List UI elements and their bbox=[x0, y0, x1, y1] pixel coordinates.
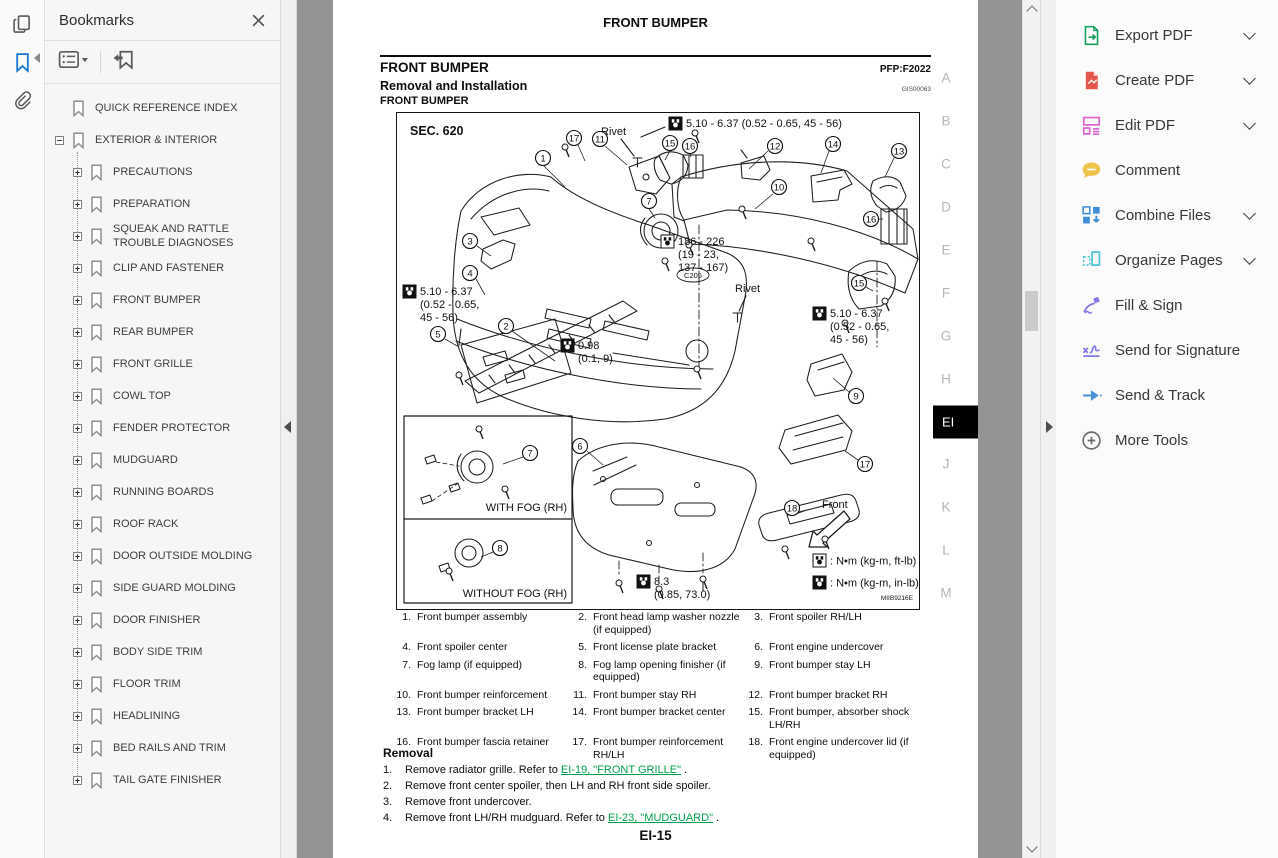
svg-text:12: 12 bbox=[770, 141, 781, 152]
scroll-down-icon[interactable] bbox=[1026, 841, 1037, 852]
tool-send-signature[interactable]: Send for Signature bbox=[1056, 328, 1278, 373]
tool-label: Comment bbox=[1115, 162, 1180, 179]
bookmark-label: MUDGUARD bbox=[113, 453, 178, 467]
svg-text:(19 - 23,: (19 - 23, bbox=[678, 249, 719, 261]
bookmark-options-icon[interactable] bbox=[57, 48, 90, 76]
removal-step: 1.Remove radiator grille. Refer to EI-19… bbox=[383, 762, 719, 778]
svg-text:16: 16 bbox=[866, 214, 877, 225]
new-bookmark-icon[interactable] bbox=[111, 48, 138, 76]
tool-label: Fill & Sign bbox=[1115, 297, 1183, 314]
svg-text:3: 3 bbox=[467, 236, 472, 247]
bookmark-item[interactable]: CLIP AND FASTENER bbox=[45, 252, 280, 284]
tool-send-track[interactable]: Send & Track bbox=[1056, 373, 1278, 418]
tool-export-pdf[interactable]: Export PDF bbox=[1056, 13, 1278, 58]
svg-text:WITHOUT FOG (RH): WITHOUT FOG (RH) bbox=[463, 588, 567, 600]
bookmark-item[interactable]: BED RAILS AND TRIM bbox=[45, 732, 280, 764]
part-item: 8.Fog lamp opening finisher (if equipped… bbox=[572, 659, 748, 684]
bookmark-item[interactable]: PREPARATION bbox=[45, 188, 280, 220]
svg-text:8: 8 bbox=[497, 543, 502, 554]
page-banner-title: FRONT BUMPER bbox=[333, 15, 978, 30]
removal-step: 2.Remove front center spoiler, then LH a… bbox=[383, 778, 719, 794]
part-item: 5.Front license plate bracket bbox=[572, 641, 748, 654]
bookmark-label: ROOF RACK bbox=[113, 517, 178, 531]
bookmark-label: COWL TOP bbox=[113, 389, 171, 403]
section-tab: A bbox=[931, 71, 961, 86]
chevron-down-icon[interactable] bbox=[1243, 252, 1256, 265]
svg-text:C205: C205 bbox=[684, 271, 702, 280]
expand-right-icon bbox=[1046, 421, 1053, 433]
bookmark-label: RUNNING BOARDS bbox=[113, 485, 214, 499]
svg-text:15: 15 bbox=[854, 278, 865, 289]
tool-organize-pages[interactable]: Organize Pages bbox=[1056, 238, 1278, 283]
page-thumbnails-button[interactable] bbox=[0, 8, 44, 46]
bookmark-item[interactable]: FRONT BUMPER bbox=[45, 284, 280, 316]
bookmarks-panel: Bookmarks QUICK REFERENCE INDEXEXTERIOR … bbox=[45, 0, 281, 858]
bookmark-label: FENDER PROTECTOR bbox=[113, 421, 230, 435]
svg-text:18: 18 bbox=[787, 503, 798, 514]
part-item: 15.Front bumper, absorber shock LH/RH bbox=[748, 706, 920, 731]
bookmark-item[interactable]: FRONT GRILLE bbox=[45, 348, 280, 380]
part-item: 13.Front bumper bracket LH bbox=[396, 706, 572, 731]
bookmark-label: TAIL GATE FINISHER bbox=[113, 773, 222, 787]
bookmark-item[interactable]: TAIL GATE FINISHER bbox=[45, 764, 280, 796]
cross-reference-link[interactable]: EI-23, "MUDGUARD" bbox=[608, 812, 713, 824]
bookmark-label: BED RAILS AND TRIM bbox=[113, 741, 226, 755]
part-item: 10.Front bumper reinforcement bbox=[396, 689, 572, 702]
export-pdf-icon bbox=[1079, 24, 1103, 48]
part-item: 17.Front bumper reinforcement RH/LH bbox=[572, 736, 748, 761]
part-item: 4.Front spoiler center bbox=[396, 641, 572, 654]
svg-text:Front: Front bbox=[822, 499, 848, 511]
tool-more-tools[interactable]: More Tools bbox=[1056, 418, 1278, 463]
chevron-down-icon[interactable] bbox=[1243, 117, 1256, 130]
svg-text:5.10 - 6.37: 5.10 - 6.37 bbox=[420, 286, 473, 298]
part-item: 7.Fog lamp (if equipped) bbox=[396, 659, 572, 684]
svg-text:15: 15 bbox=[665, 138, 676, 149]
svg-text:5: 5 bbox=[435, 329, 440, 340]
left-rail bbox=[0, 0, 45, 858]
svg-text:10: 10 bbox=[774, 182, 785, 193]
tool-label: Create PDF bbox=[1115, 72, 1194, 89]
send-signature-icon bbox=[1079, 339, 1103, 363]
bookmark-item[interactable]: ROOF RACK bbox=[45, 508, 280, 540]
bookmark-item[interactable]: FENDER PROTECTOR bbox=[45, 412, 280, 444]
svg-text:: N•m (kg-m, ft-lb): : N•m (kg-m, ft-lb) bbox=[830, 556, 916, 568]
tool-label: Send & Track bbox=[1115, 387, 1205, 404]
bookmark-item[interactable]: REAR BUMPER bbox=[45, 316, 280, 348]
part-item: 18.Front engine undercover lid (if equip… bbox=[748, 736, 920, 761]
part-item: 11.Front bumper stay RH bbox=[572, 689, 748, 702]
section-tab-active: EI bbox=[933, 406, 978, 439]
collapse-notch-icon bbox=[34, 53, 40, 63]
svg-text:: N•m (kg-m, in-lb): : N•m (kg-m, in-lb) bbox=[830, 578, 919, 590]
bookmarks-header: Bookmarks bbox=[45, 0, 280, 41]
bookmark-label: DOOR FINISHER bbox=[113, 613, 200, 627]
sec-label: SEC. 620 bbox=[410, 124, 464, 138]
tool-fill-sign[interactable]: Fill & Sign bbox=[1056, 283, 1278, 328]
bookmark-item[interactable]: SQUEAK AND RATTLE TROUBLE DIAGNOSES bbox=[45, 220, 280, 252]
bookmark-item[interactable]: COWL TOP bbox=[45, 380, 280, 412]
svg-text:Rivet: Rivet bbox=[735, 283, 760, 295]
create-pdf-icon bbox=[1079, 69, 1103, 93]
section-tab: E bbox=[931, 243, 961, 258]
section-tab: M bbox=[931, 586, 961, 601]
bookmark-item[interactable]: SIDE GUARD MOLDING bbox=[45, 572, 280, 604]
cross-reference-link[interactable]: EI-19, "FRONT GRILLE" bbox=[561, 764, 681, 776]
section-tab: B bbox=[931, 114, 961, 129]
tool-label: Send for Signature bbox=[1115, 342, 1240, 359]
tool-label: Combine Files bbox=[1115, 207, 1211, 224]
bookmark-label: PRECAUTIONS bbox=[113, 165, 192, 179]
bookmark-item[interactable]: MUDGUARD bbox=[45, 444, 280, 476]
bookmark-item[interactable]: PRECAUTIONS bbox=[45, 156, 280, 188]
scroll-up-icon[interactable] bbox=[1026, 5, 1037, 16]
collapse-left-panel-handle[interactable] bbox=[281, 0, 297, 858]
scrollbar-thumb[interactable] bbox=[1025, 291, 1038, 331]
subsection-heading: Removal and Installation bbox=[380, 79, 527, 93]
bookmarks-panel-button[interactable] bbox=[0, 46, 44, 84]
diagram-art bbox=[404, 127, 918, 603]
bookmark-label: CLIP AND FASTENER bbox=[113, 261, 224, 275]
bookmark-item[interactable]: QUICK REFERENCE INDEX bbox=[45, 92, 280, 124]
svg-text:5.10 - 6.37 (0.52 - 0.65, 45 -: 5.10 - 6.37 (0.52 - 0.65, 45 - 56) bbox=[686, 118, 842, 130]
svg-text:16: 16 bbox=[685, 141, 696, 152]
section-heading: FRONT BUMPER bbox=[380, 60, 489, 75]
heading-rule bbox=[380, 55, 931, 57]
acrobat-window: Bookmarks QUICK REFERENCE INDEXEXTERIOR … bbox=[0, 0, 1278, 858]
svg-text:17: 17 bbox=[569, 133, 580, 144]
pdf-page: FRONT BUMPER FRONT BUMPER PFP:F2022 Remo… bbox=[333, 0, 978, 858]
part-item: 14.Front bumper bracket center bbox=[572, 706, 748, 731]
section-tab: F bbox=[931, 286, 961, 301]
part-item: 1.Front bumper assembly bbox=[396, 611, 572, 636]
tools-list: Export PDFCreate PDFEdit PDFCommentCombi… bbox=[1056, 13, 1278, 463]
part-item: 2.Front head lamp washer nozzle (if equi… bbox=[572, 611, 748, 636]
more-tools-icon bbox=[1079, 429, 1103, 453]
part-item: 3.Front spoiler RH/LH bbox=[748, 611, 920, 636]
bookmark-item[interactable]: FLOOR TRIM bbox=[45, 668, 280, 700]
tool-label: Organize Pages bbox=[1115, 252, 1223, 269]
svg-text:0.98: 0.98 bbox=[578, 340, 599, 352]
tool-combine-files[interactable]: Combine Files bbox=[1056, 193, 1278, 238]
toolbar-divider bbox=[100, 51, 101, 73]
bookmark-tree: QUICK REFERENCE INDEXEXTERIOR & INTERIOR… bbox=[45, 84, 280, 796]
figure-code: MIIB9216E bbox=[881, 595, 914, 602]
page-number: EI-15 bbox=[333, 828, 978, 843]
section-tab: D bbox=[931, 200, 961, 215]
document-scrollbar[interactable] bbox=[1022, 0, 1041, 858]
svg-text:186 - 226: 186 - 226 bbox=[678, 236, 724, 248]
comment-icon bbox=[1079, 159, 1103, 183]
svg-text:WITH FOG (RH): WITH FOG (RH) bbox=[486, 502, 567, 514]
bookmark-item[interactable]: DOOR OUTSIDE MOLDING bbox=[45, 540, 280, 572]
tool-label: Export PDF bbox=[1115, 27, 1193, 44]
bookmark-label: SQUEAK AND RATTLE TROUBLE DIAGNOSES bbox=[113, 222, 263, 250]
part-item: 9.Front bumper stay LH bbox=[748, 659, 920, 684]
bookmarks-toolbar bbox=[45, 41, 280, 84]
svg-text:(0.1, 9): (0.1, 9) bbox=[578, 353, 613, 365]
bookmark-label: FLOOR TRIM bbox=[113, 677, 181, 691]
exploded-diagram: 5.10 - 6.37 (0.52 - 0.65, 45 - 56)5.10 -… bbox=[396, 112, 920, 610]
svg-text:7: 7 bbox=[527, 448, 532, 459]
svg-text:8.3: 8.3 bbox=[654, 576, 669, 588]
section-tab: K bbox=[931, 500, 961, 515]
pfp-code: PFP:F2022 bbox=[880, 64, 931, 75]
bookmark-label: BODY SIDE TRIM bbox=[113, 645, 202, 659]
collapse-left-icon bbox=[284, 421, 291, 433]
svg-text:1: 1 bbox=[540, 153, 545, 164]
svg-text:6: 6 bbox=[577, 441, 582, 452]
bookmark-item[interactable]: BODY SIDE TRIM bbox=[45, 636, 280, 668]
send-track-icon bbox=[1079, 384, 1103, 408]
bookmark-label: REAR BUMPER bbox=[113, 325, 194, 339]
tool-label: More Tools bbox=[1115, 432, 1188, 449]
combine-files-icon bbox=[1079, 204, 1103, 228]
tool-edit-pdf[interactable]: Edit PDF bbox=[1056, 103, 1278, 148]
part-item: 6.Front engine undercover bbox=[748, 641, 920, 654]
svg-text:17: 17 bbox=[860, 459, 871, 470]
tool-comment[interactable]: Comment bbox=[1056, 148, 1278, 193]
bookmark-item[interactable]: RUNNING BOARDS bbox=[45, 476, 280, 508]
paperclip-icon bbox=[11, 89, 34, 117]
organize-pages-icon bbox=[1079, 249, 1103, 273]
bookmark-label: SIDE GUARD MOLDING bbox=[113, 581, 236, 595]
bookmarks-icon bbox=[11, 51, 34, 79]
bookmark-item[interactable]: EXTERIOR & INTERIOR bbox=[45, 124, 280, 156]
svg-text:13: 13 bbox=[894, 146, 905, 157]
bookmark-label: FRONT GRILLE bbox=[113, 357, 193, 371]
svg-text:14: 14 bbox=[828, 139, 839, 150]
bookmark-label: HEADLINING bbox=[113, 709, 180, 723]
chevron-down-icon[interactable] bbox=[1243, 27, 1256, 40]
parts-list: 1.Front bumper assembly2.Front head lamp… bbox=[396, 611, 920, 766]
svg-text:(0.52 - 0.65,: (0.52 - 0.65, bbox=[420, 299, 479, 311]
svg-text:2: 2 bbox=[503, 321, 508, 332]
svg-text:(0.52 - 0.65,: (0.52 - 0.65, bbox=[830, 321, 889, 333]
section-tab: J bbox=[931, 457, 961, 472]
svg-text:11: 11 bbox=[595, 134, 605, 145]
attachments-button[interactable] bbox=[0, 84, 44, 122]
edit-pdf-icon bbox=[1079, 114, 1103, 138]
chevron-down-icon[interactable] bbox=[1243, 207, 1256, 220]
tool-label: Edit PDF bbox=[1115, 117, 1175, 134]
svg-text:45 - 56): 45 - 56) bbox=[420, 312, 458, 324]
section-tab: G bbox=[931, 329, 961, 344]
section-tab: C bbox=[931, 157, 961, 172]
bookmark-item[interactable]: HEADLINING bbox=[45, 700, 280, 732]
removal-steps: 1.Remove radiator grille. Refer to EI-19… bbox=[383, 762, 719, 826]
section-tab: L bbox=[931, 543, 961, 558]
fill-sign-icon bbox=[1079, 294, 1103, 318]
close-icon[interactable] bbox=[251, 13, 266, 28]
bookmark-label: EXTERIOR & INTERIOR bbox=[95, 133, 217, 147]
page-thumbnails-icon bbox=[11, 13, 34, 41]
gis-code: GIS00063 bbox=[902, 86, 931, 93]
part-item: 12.Front bumper bracket RH bbox=[748, 689, 920, 702]
bookmark-item[interactable]: DOOR FINISHER bbox=[45, 604, 280, 636]
svg-text:45 - 56): 45 - 56) bbox=[830, 334, 868, 346]
svg-text:(0.85, 73.0): (0.85, 73.0) bbox=[654, 589, 710, 601]
sub-subsection-heading: FRONT BUMPER bbox=[380, 95, 469, 107]
tools-panel: Export PDFCreate PDFEdit PDFCommentCombi… bbox=[1056, 0, 1278, 858]
svg-text:9: 9 bbox=[853, 391, 858, 402]
bookmark-label: DOOR OUTSIDE MOLDING bbox=[113, 549, 252, 563]
svg-text:5.10 - 6.37: 5.10 - 6.37 bbox=[830, 308, 883, 320]
bookmarks-title: Bookmarks bbox=[59, 12, 134, 29]
removal-step: 3.Remove front undercover. bbox=[383, 794, 719, 810]
bookmark-label: PREPARATION bbox=[113, 197, 190, 211]
tool-create-pdf[interactable]: Create PDF bbox=[1056, 58, 1278, 103]
bookmark-label: FRONT BUMPER bbox=[113, 293, 201, 307]
bookmark-label: QUICK REFERENCE INDEX bbox=[95, 101, 237, 115]
collapse-tools-panel-handle[interactable] bbox=[1040, 0, 1057, 858]
chevron-down-icon[interactable] bbox=[1243, 72, 1256, 85]
removal-step: 4.Remove front LH/RH mudguard. Refer to … bbox=[383, 810, 719, 826]
svg-text:4: 4 bbox=[467, 268, 472, 279]
section-tab: H bbox=[931, 372, 961, 387]
svg-text:7: 7 bbox=[646, 196, 651, 207]
removal-heading: Removal bbox=[383, 746, 433, 760]
